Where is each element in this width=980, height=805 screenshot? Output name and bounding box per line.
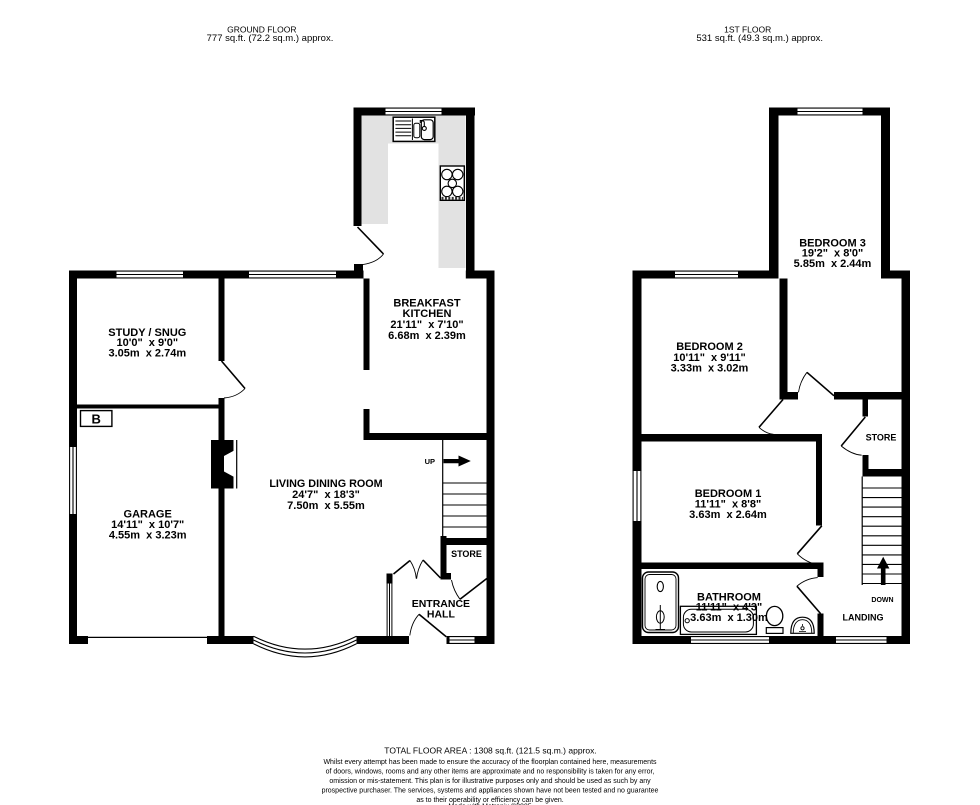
- svg-text:531 sq.ft. (49.3 sq.m.) approx: 531 sq.ft. (49.3 sq.m.) approx.: [696, 33, 823, 44]
- svg-text:3.63m x 1.30m: 3.63m x 1.30m: [690, 612, 768, 624]
- svg-text:DOWN: DOWN: [871, 597, 893, 604]
- svg-text:3.33m x 3.02m: 3.33m x 3.02m: [671, 362, 749, 374]
- svg-text:3.63m x 2.64m: 3.63m x 2.64m: [689, 509, 767, 521]
- svg-text:STORE: STORE: [451, 549, 482, 559]
- svg-text:7.50m x 5.55m: 7.50m x 5.55m: [287, 500, 365, 512]
- svg-text:777 sq.ft. (72.2 sq.m.) approx: 777 sq.ft. (72.2 sq.m.) approx.: [207, 33, 334, 44]
- svg-text:KITCHEN: KITCHEN: [403, 308, 452, 320]
- svg-text:3.05m x 2.74m: 3.05m x 2.74m: [108, 347, 186, 359]
- svg-text:STORE: STORE: [866, 432, 897, 442]
- svg-text:omission or mis-statement. Thi: omission or mis-statement. This plan is …: [329, 778, 651, 785]
- svg-text:UP: UP: [425, 457, 435, 466]
- svg-text:Whilst every attempt has been: Whilst every attempt has been made to en…: [323, 759, 657, 766]
- svg-text:HALL: HALL: [427, 608, 456, 620]
- svg-text:of doors, windows, rooms and a: of doors, windows, rooms and any other i…: [326, 769, 655, 776]
- svg-text:4.55m x 3.23m: 4.55m x 3.23m: [109, 529, 187, 541]
- svg-text:6.68m x 2.39m: 6.68m x 2.39m: [388, 330, 466, 342]
- svg-text:LANDING: LANDING: [843, 612, 884, 622]
- svg-text:TOTAL FLOOR AREA : 1308 sq.ft.: TOTAL FLOOR AREA : 1308 sq.ft. (121.5 sq…: [384, 746, 596, 756]
- svg-text:B: B: [92, 411, 101, 426]
- svg-text:5.85m x 2.44m: 5.85m x 2.44m: [794, 258, 872, 270]
- svg-text:prospective purchaser. The ser: prospective purchaser. The services, sys…: [322, 788, 659, 795]
